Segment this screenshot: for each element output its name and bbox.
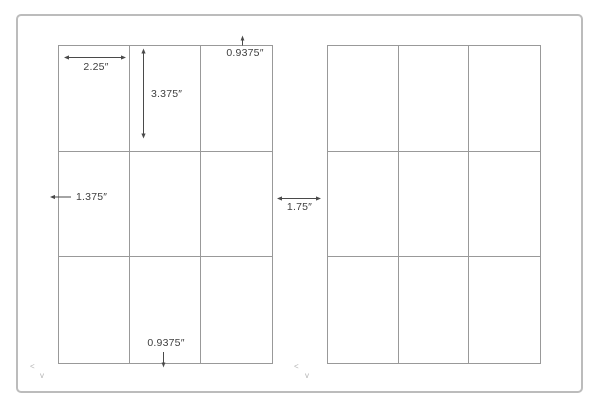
label-cell [328, 46, 399, 152]
fold-mark-left-icon: < [294, 363, 299, 371]
label-width-dimension: 2.25″ [66, 61, 126, 73]
bottom-margin-dimension: 0.9375″ [137, 337, 195, 349]
top-margin-dimension: 0.9375″ [216, 47, 274, 59]
label-cell [201, 257, 272, 363]
label-cell [201, 46, 272, 152]
fold-mark-down-icon: v [40, 372, 44, 380]
label-template-diagram: 2.25″ 3.375″ 0.9375″ 1.375″ 1.75″ 0.9375… [0, 0, 600, 411]
label-cell [201, 152, 272, 258]
label-sheet-right [327, 45, 541, 364]
fold-mark-left-icon: < [30, 363, 35, 371]
fold-mark-down-icon: v [305, 372, 309, 380]
label-cell [328, 152, 399, 258]
label-cell [328, 257, 399, 363]
label-cell [399, 152, 470, 258]
label-cell [469, 152, 540, 258]
sheet-gap-dimension: 1.75″ [277, 201, 322, 213]
label-cell [469, 46, 540, 152]
label-cell [59, 257, 130, 363]
label-cell [399, 257, 470, 363]
label-cell [399, 46, 470, 152]
label-cell [59, 152, 130, 258]
label-cell [130, 152, 201, 258]
label-height-dimension: 3.375″ [151, 88, 182, 100]
label-cell [469, 257, 540, 363]
left-margin-dimension: 1.375″ [76, 191, 107, 203]
